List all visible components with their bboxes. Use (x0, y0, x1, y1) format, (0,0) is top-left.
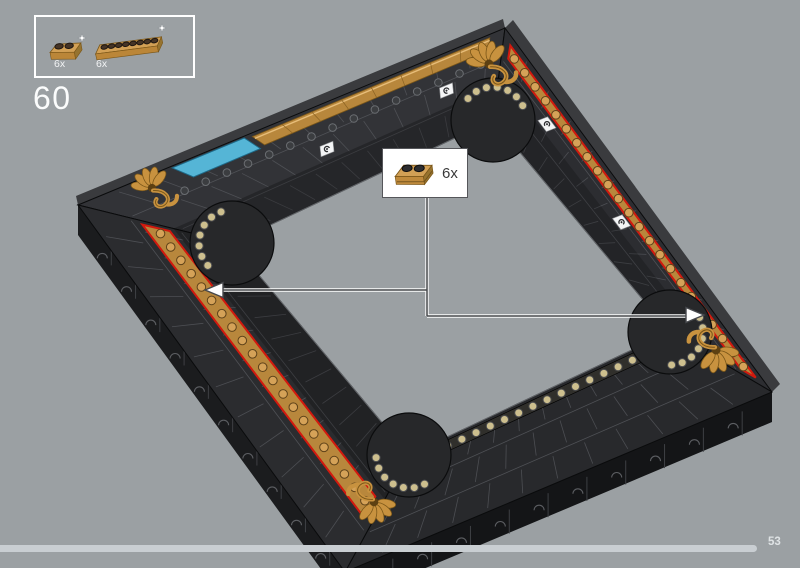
callout-part-plate-1x2-icon (387, 152, 441, 194)
callout-count-label: 6x (442, 165, 458, 182)
part-callout: 6x (382, 148, 468, 198)
page-number: 53 (768, 536, 781, 548)
part-count-label: 6x (96, 58, 107, 70)
frame-model-illustration (0, 0, 800, 568)
step-parts-box: 6x 6x (34, 15, 195, 78)
new-part-sparkle-icon (78, 34, 87, 43)
progress-bar (0, 545, 757, 552)
part-count-label: 6x (54, 58, 65, 70)
instruction-page: 6x 6x 60 6x 53 (0, 0, 800, 568)
step-number: 60 (33, 80, 72, 117)
part-plate-1x2-icon (44, 31, 90, 69)
new-part-sparkle-icon (158, 24, 167, 33)
